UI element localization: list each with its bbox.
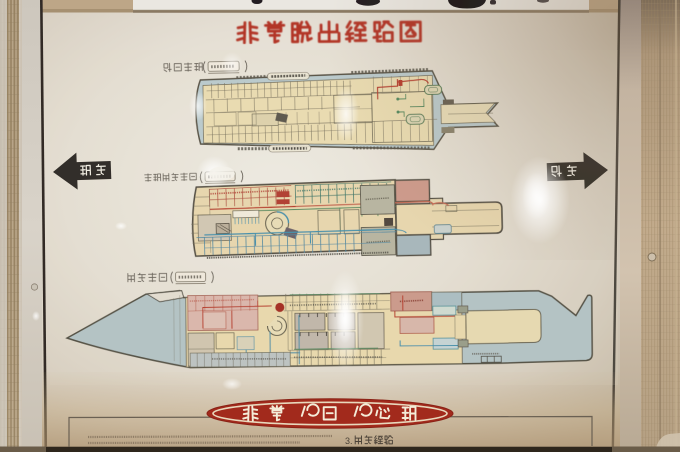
- svg-text:3.: 3.: [345, 436, 353, 446]
